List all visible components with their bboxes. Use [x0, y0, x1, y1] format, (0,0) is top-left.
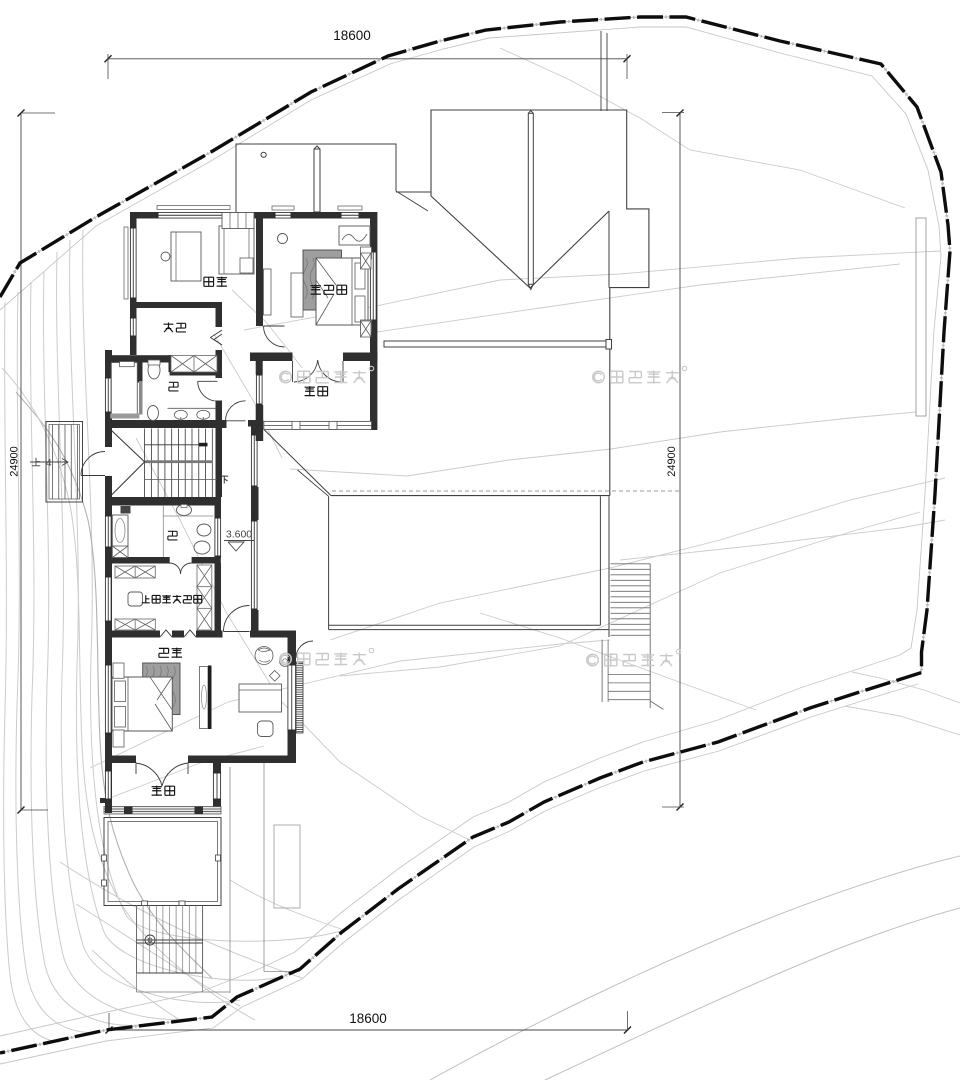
svg-text:24900: 24900	[666, 446, 678, 477]
svg-text:4: 4	[46, 458, 52, 469]
svg-text:3.600: 3.600	[226, 529, 252, 541]
svg-text:24900: 24900	[9, 446, 21, 477]
svg-text:18600: 18600	[349, 1011, 387, 1026]
svg-text:18600: 18600	[333, 28, 371, 43]
